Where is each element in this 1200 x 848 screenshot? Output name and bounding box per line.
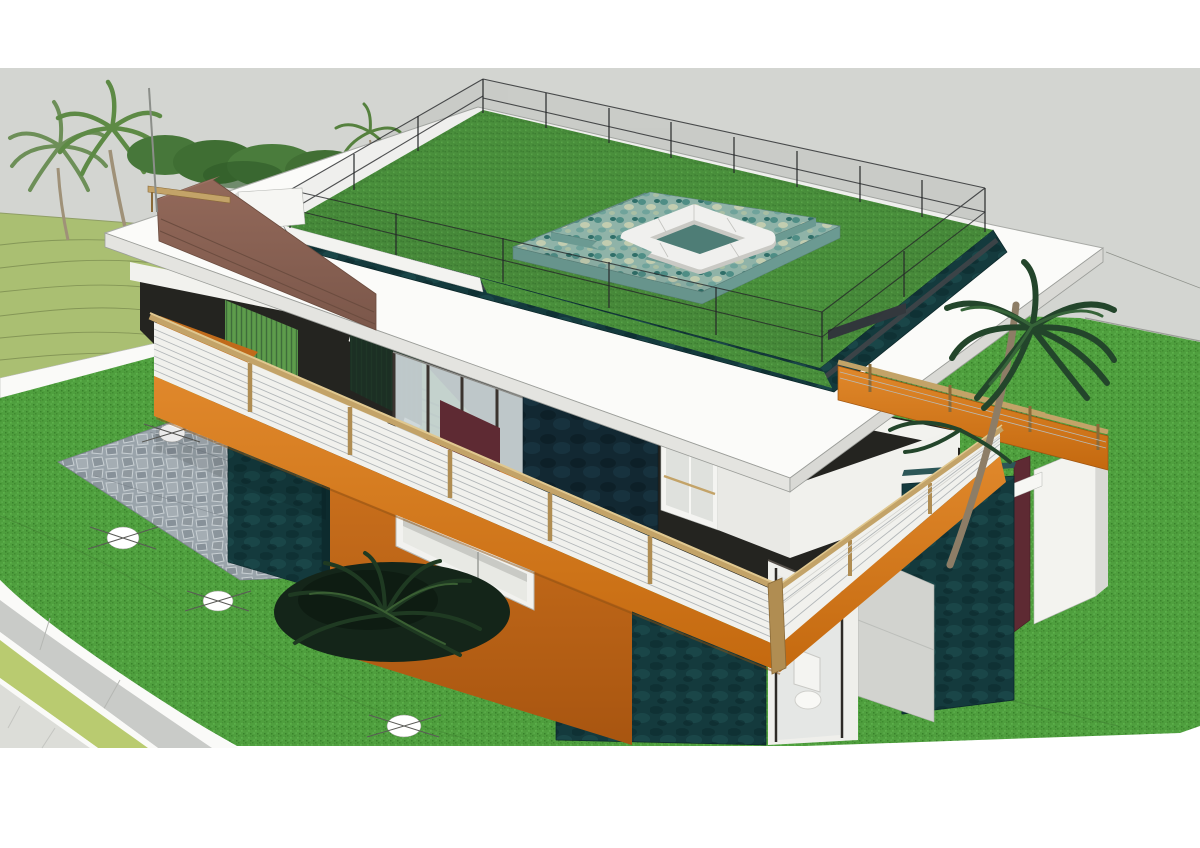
architectural-rendering: 3D architectural rendering - modern two-… (0, 0, 1200, 848)
toilet (794, 648, 821, 709)
rendering-canvas: 3D architectural rendering - modern two-… (0, 0, 1200, 848)
